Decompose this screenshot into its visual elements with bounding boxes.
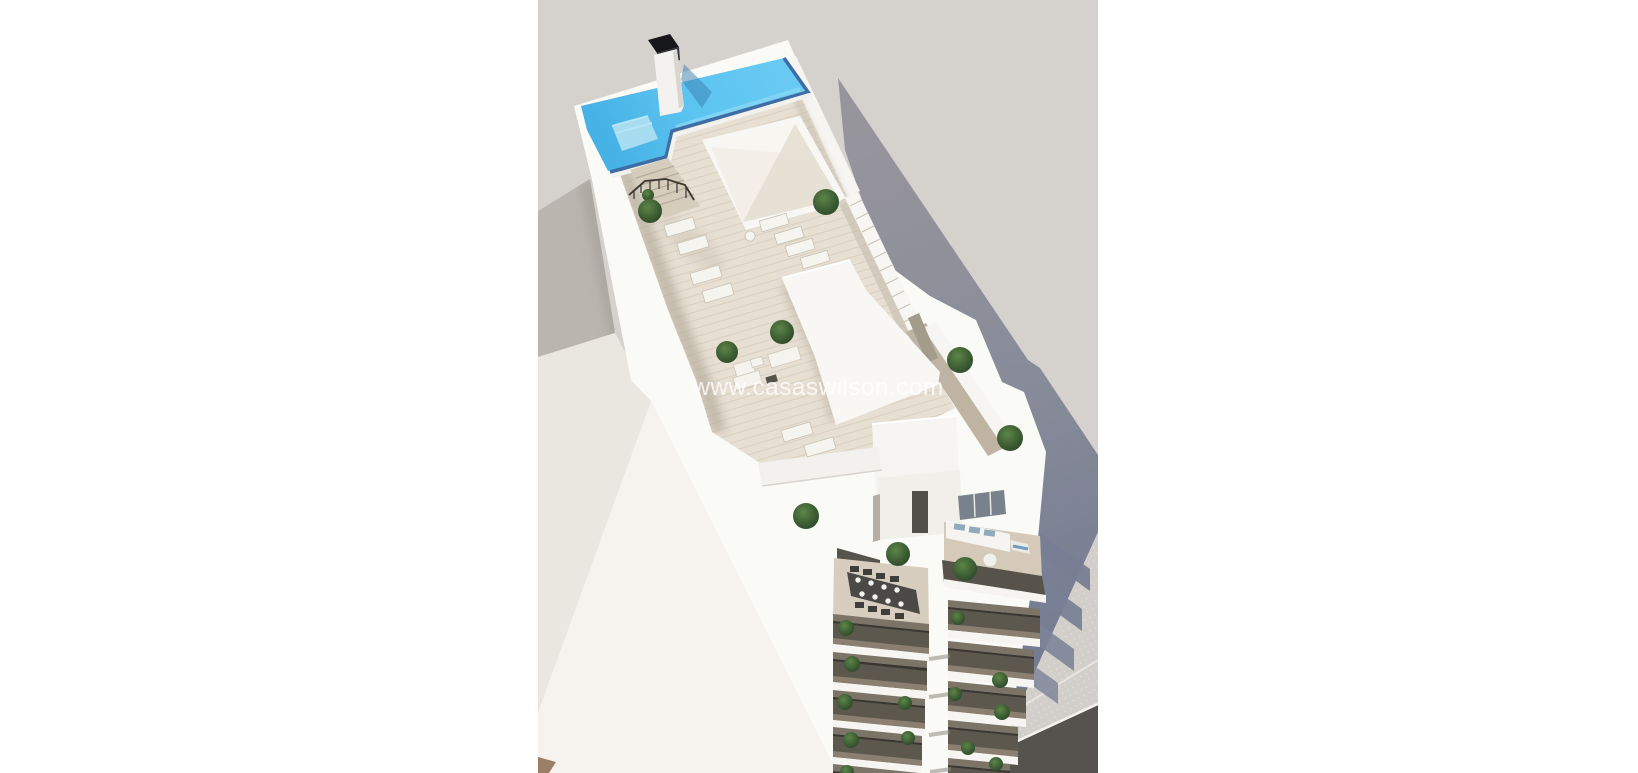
svg-text:www.casaswilson.com: www.casaswilson.com: [691, 374, 943, 401]
